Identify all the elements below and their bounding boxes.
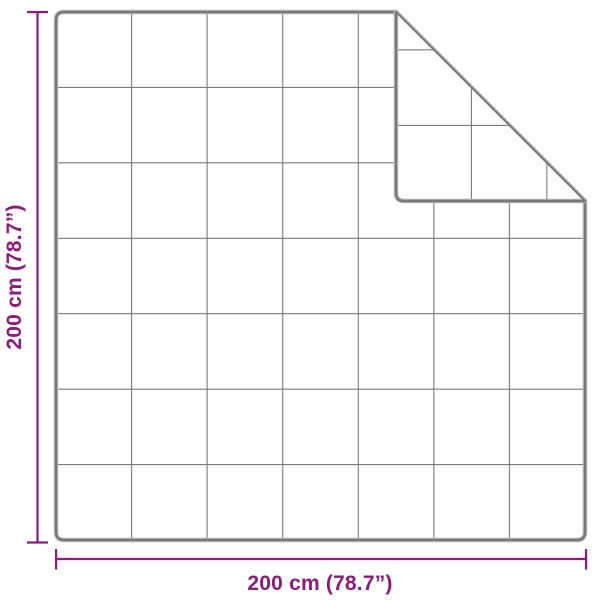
height-label: 200 cm (78.7”)	[3, 204, 26, 349]
width-dimension: 200 cm (78.7”)	[56, 549, 586, 595]
blanket-dimension-drawing: 200 cm (78.7”) 200 cm (78.7”)	[0, 0, 600, 600]
blanket-body	[56, 12, 585, 540]
blanket	[56, 12, 585, 540]
width-label: 200 cm (78.7”)	[247, 572, 392, 595]
height-dimension: 200 cm (78.7”)	[3, 12, 48, 543]
product-dimension-diagram: 200 cm (78.7”) 200 cm (78.7”)	[0, 0, 600, 600]
